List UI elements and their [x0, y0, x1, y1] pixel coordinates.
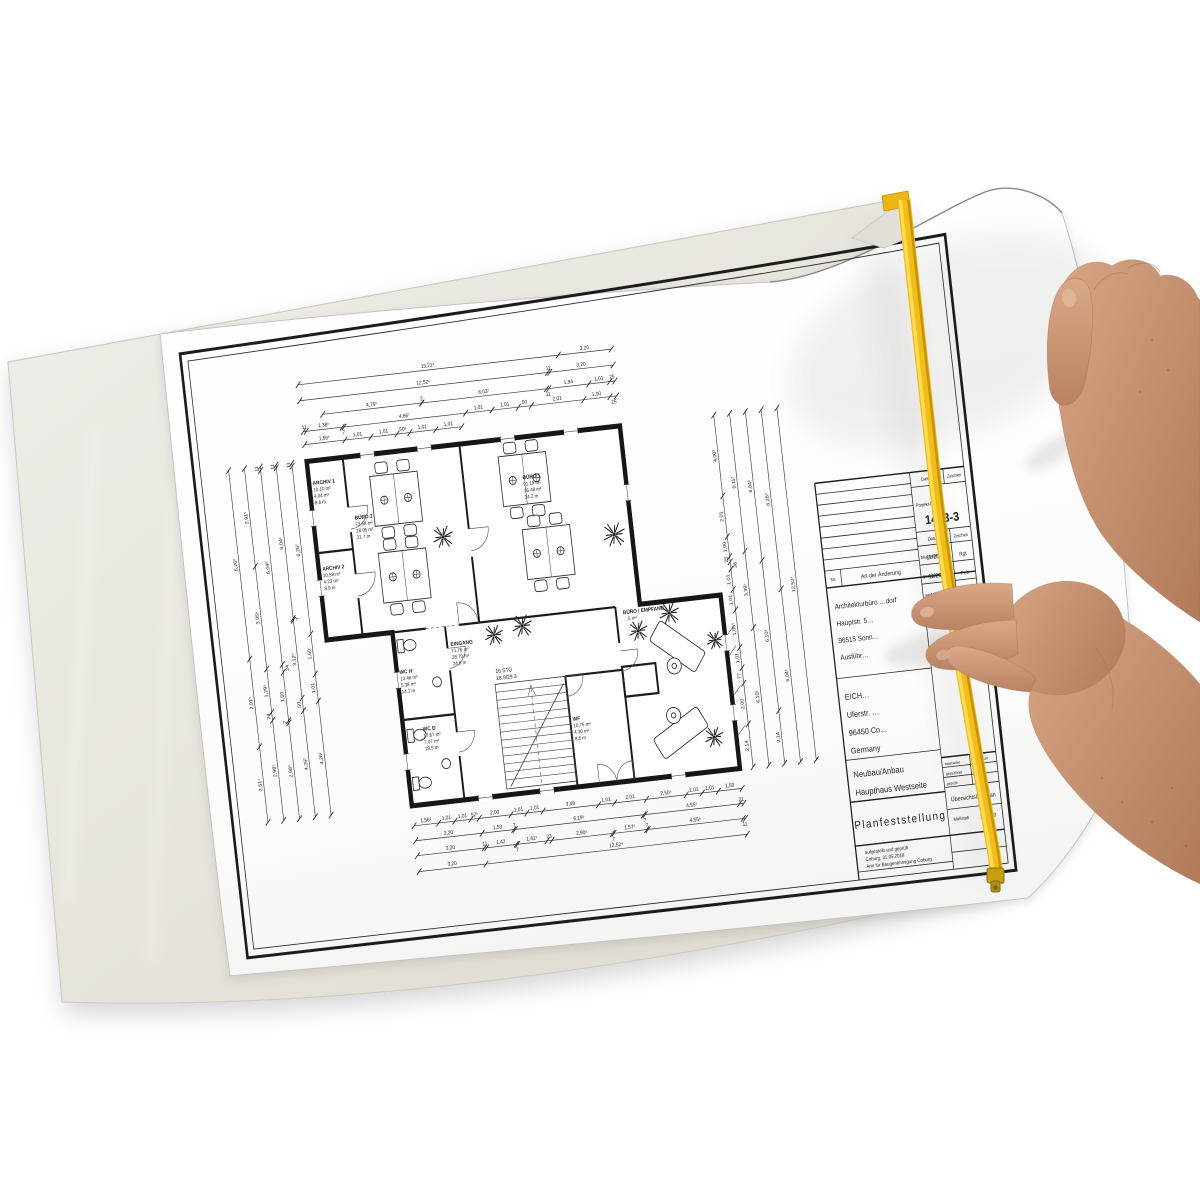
dim-label: 11	[742, 821, 748, 828]
dim-label: 24	[285, 664, 291, 671]
dim-label: 1,00	[592, 391, 602, 398]
dim-label: 6,19⁵	[573, 815, 585, 823]
dim-label: 1,01	[514, 806, 524, 813]
dim-label: 1,56⁵	[319, 435, 331, 443]
dim-label: 1,50	[279, 691, 286, 702]
dim-label: 1,01	[417, 424, 427, 431]
dim-label: 2,01	[552, 395, 562, 402]
dim-label: 4,66⁷	[399, 413, 411, 421]
dim-label: 1,01	[458, 813, 468, 820]
staff-row-zeichen: Poh	[961, 570, 970, 577]
dim-label: 4,55⁵	[686, 802, 698, 810]
dim-label: 2,01	[719, 511, 726, 522]
scene: 1,56⁵1,011,0150⁵1,011,01111,38⁵74,66⁷1,0…	[0, 0, 1200, 1200]
dim-label: 4,79⁵	[366, 401, 378, 409]
dim-label: 25	[611, 399, 617, 406]
revision-nr-label: Nr.	[830, 577, 836, 584]
room-name: WF	[572, 716, 580, 723]
dim-label: 1,01	[734, 652, 741, 663]
dim-label: 1,01	[705, 785, 715, 792]
dim-label: 2,14	[744, 740, 751, 751]
dim-label: 1,01	[594, 375, 604, 382]
dim-label: 1,42	[496, 839, 506, 846]
dim-label: 3,20	[447, 860, 457, 867]
dim-label: 6,03⁷	[478, 388, 490, 396]
dim-label: 1,56⁵	[420, 817, 432, 825]
room-measure: 8.9 m	[324, 585, 336, 593]
dim-label: 3,20	[576, 361, 586, 368]
dim-label: 52⁵	[471, 812, 479, 819]
product-photo-plan-sleeve: 1,56⁵1,011,0150⁵1,011,01111,38⁵74,66⁷1,0…	[0, 0, 1200, 1200]
dim-label: 1,57⁵	[624, 824, 636, 832]
dim-label: 25	[724, 556, 730, 563]
dim-label: 50	[522, 399, 528, 406]
dim-label: 50	[297, 701, 303, 708]
dim-label: 77	[737, 672, 743, 679]
dim-label: 1,53	[493, 824, 503, 831]
dim-label: 1,01	[473, 404, 483, 411]
dim-label: 1,01	[728, 594, 735, 605]
dim-label: 1,01	[353, 431, 363, 438]
dim-label: 3,20	[579, 345, 589, 352]
dim-label: 36	[733, 561, 739, 568]
staff-row-zeichen: Rgt	[959, 551, 968, 558]
dim-label: 1,01	[379, 428, 389, 435]
dim-label: 24	[266, 713, 272, 720]
dim-label: 11	[546, 391, 552, 398]
dim-label: 1,01	[726, 574, 733, 585]
dim-label: 3,20	[444, 830, 454, 837]
dim-label: 23	[546, 834, 552, 841]
dim-label: 1,01	[310, 682, 317, 693]
dim-label: 1,01	[689, 787, 699, 794]
room-measure: 8.6 m	[575, 735, 587, 743]
dim-label: 1,38⁵	[318, 422, 330, 430]
dim-label: 1,01	[601, 797, 611, 804]
dim-label: 1,01	[500, 401, 510, 408]
dim-label: 2,00	[490, 809, 500, 816]
dim-label: 3,20	[445, 845, 455, 852]
dim-label: 1,01	[443, 421, 453, 428]
dim-label: 1,94	[563, 379, 573, 386]
dim-label: 1,00	[722, 541, 729, 552]
dim-label: 2,01	[625, 794, 635, 801]
dim-label: 1,01	[530, 805, 540, 812]
dim-label: 25	[609, 374, 615, 381]
dim-label: 50⁵	[399, 426, 407, 433]
dim-label: 21	[738, 796, 744, 803]
dim-label: 3,49	[565, 801, 575, 808]
dim-label: 4,55⁵	[689, 817, 701, 825]
dim-label: 1,01	[442, 815, 452, 822]
dim-label: 1,50	[725, 782, 735, 789]
dim-label: 1,50	[307, 649, 314, 660]
dim-label: 2,50⁵	[660, 790, 672, 798]
dim-label: 2,14	[775, 732, 782, 743]
dim-label: 2,00	[740, 698, 747, 709]
room-measure: 8.6 m	[315, 499, 327, 507]
dim-label: 11	[254, 466, 260, 472]
dim-label: 2,90⁵	[576, 829, 588, 837]
dim-label: 1,41⁵	[526, 835, 538, 843]
